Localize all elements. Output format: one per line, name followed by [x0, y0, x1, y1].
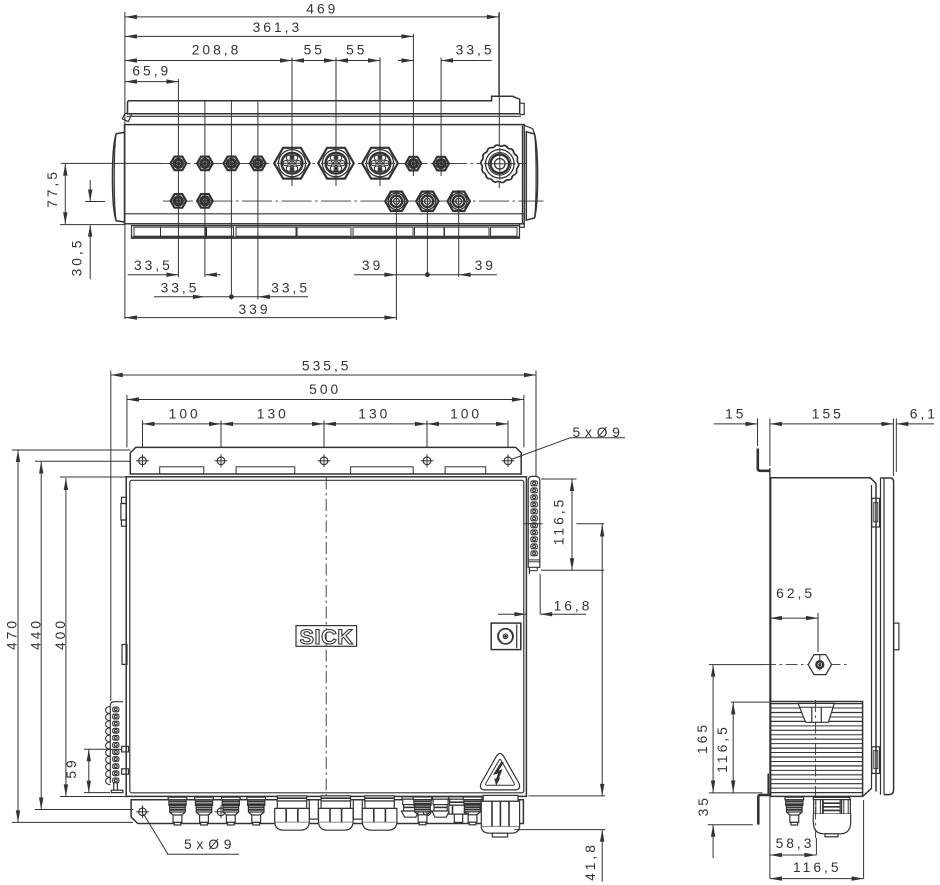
svg-text:41,8: 41,8 — [583, 842, 598, 881]
svg-text:208,8: 208,8 — [192, 43, 242, 58]
svg-text:361,3: 361,3 — [253, 20, 303, 35]
svg-text:130: 130 — [257, 406, 289, 421]
svg-text:62,5: 62,5 — [776, 586, 815, 601]
svg-text:6,1: 6,1 — [910, 407, 938, 422]
svg-text:33,5: 33,5 — [456, 43, 495, 58]
svg-text:30,5: 30,5 — [70, 238, 85, 277]
svg-text:116,5: 116,5 — [793, 860, 842, 875]
svg-text:58,3: 58,3 — [776, 836, 815, 851]
svg-text:33,5: 33,5 — [134, 258, 173, 273]
svg-text:39: 39 — [475, 258, 496, 273]
svg-text:33,5: 33,5 — [161, 280, 200, 295]
svg-text:55: 55 — [304, 43, 325, 58]
svg-text:59: 59 — [64, 757, 79, 778]
svg-text:440: 440 — [29, 618, 44, 650]
svg-text:SICK: SICK — [300, 625, 354, 649]
svg-text:5 x Ø 9: 5 x Ø 9 — [184, 837, 232, 852]
svg-text:469: 469 — [306, 1, 338, 16]
svg-text:116,5: 116,5 — [552, 497, 567, 546]
svg-text:55: 55 — [346, 43, 367, 58]
svg-text:400: 400 — [53, 618, 68, 650]
svg-text:33,5: 33,5 — [271, 280, 310, 295]
svg-text:155: 155 — [812, 407, 844, 422]
svg-text:116,5: 116,5 — [715, 724, 730, 773]
svg-text:39: 39 — [362, 258, 383, 273]
svg-text:100: 100 — [169, 406, 201, 421]
svg-text:339: 339 — [238, 302, 270, 317]
svg-text:165: 165 — [695, 722, 710, 754]
svg-text:535,5: 535,5 — [302, 359, 352, 374]
svg-text:130: 130 — [358, 406, 390, 421]
svg-text:35: 35 — [696, 795, 711, 816]
svg-text:100: 100 — [450, 406, 482, 421]
svg-text:16,8: 16,8 — [554, 598, 593, 613]
svg-text:5 x Ø 9: 5 x Ø 9 — [573, 425, 621, 440]
svg-text:470: 470 — [5, 618, 20, 650]
svg-text:15: 15 — [725, 407, 746, 422]
svg-text:500: 500 — [309, 382, 341, 397]
svg-text:65,9: 65,9 — [132, 64, 171, 79]
svg-text:77,5: 77,5 — [45, 169, 60, 208]
